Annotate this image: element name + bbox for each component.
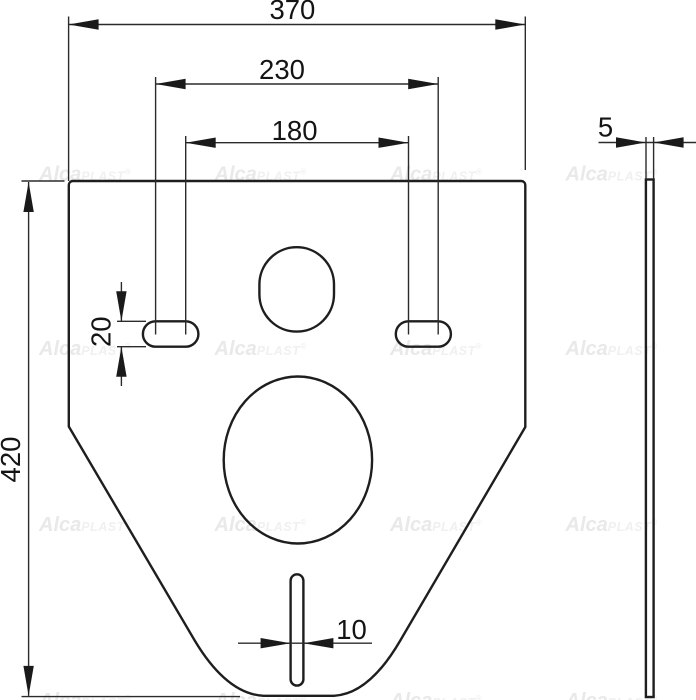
svg-text:10: 10: [336, 614, 367, 645]
svg-text:230: 230: [259, 54, 305, 85]
svg-text:5: 5: [598, 112, 613, 143]
svg-text:20: 20: [86, 316, 117, 347]
svg-text:180: 180: [272, 115, 318, 146]
svg-text:370: 370: [269, 0, 315, 25]
svg-text:420: 420: [0, 437, 26, 483]
